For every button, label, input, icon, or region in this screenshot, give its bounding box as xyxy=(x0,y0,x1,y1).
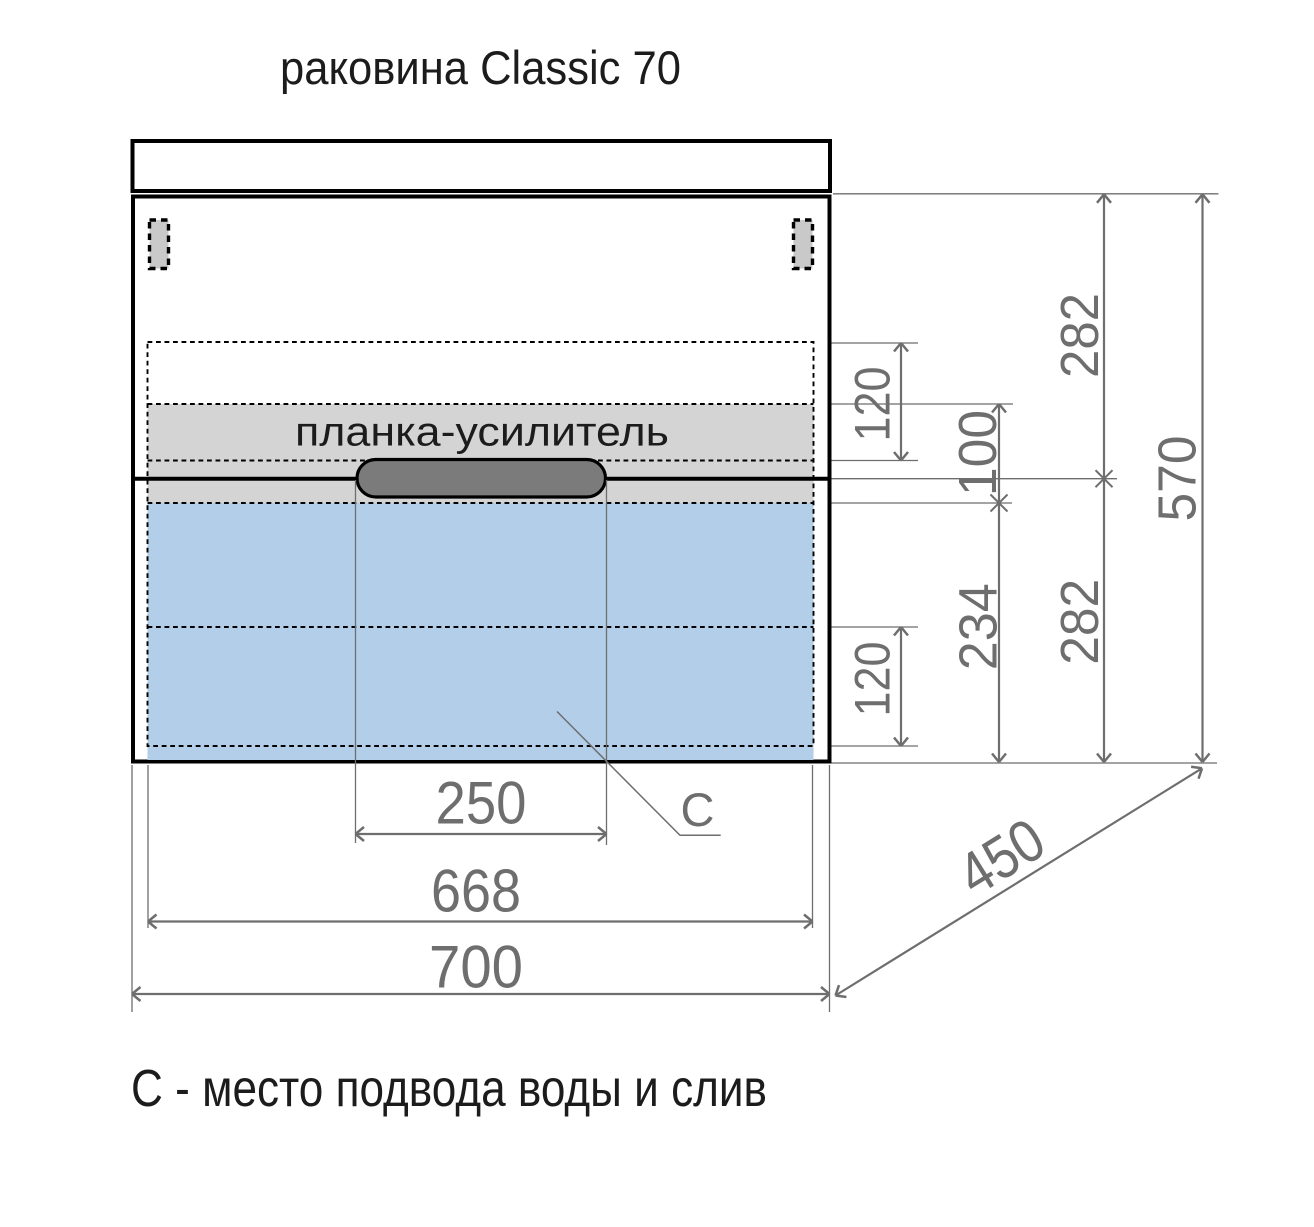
svg-text:120: 120 xyxy=(845,642,901,717)
svg-text:250: 250 xyxy=(436,770,527,837)
svg-text:668: 668 xyxy=(431,858,521,925)
svg-text:С - место подвода воды и слив: С - место подвода воды и слив xyxy=(131,1060,767,1118)
svg-text:100: 100 xyxy=(948,410,1008,496)
svg-text:234: 234 xyxy=(949,583,1009,670)
svg-text:раковина Classic 70: раковина Classic 70 xyxy=(280,41,681,94)
svg-text:282: 282 xyxy=(1050,293,1110,378)
svg-text:282: 282 xyxy=(1050,579,1110,665)
svg-text:570: 570 xyxy=(1148,436,1208,522)
svg-text:120: 120 xyxy=(845,367,901,442)
svg-text:планка-усилитель: планка-усилитель xyxy=(295,409,669,455)
svg-text:700: 700 xyxy=(429,934,523,1001)
svg-text:C: C xyxy=(681,783,715,836)
